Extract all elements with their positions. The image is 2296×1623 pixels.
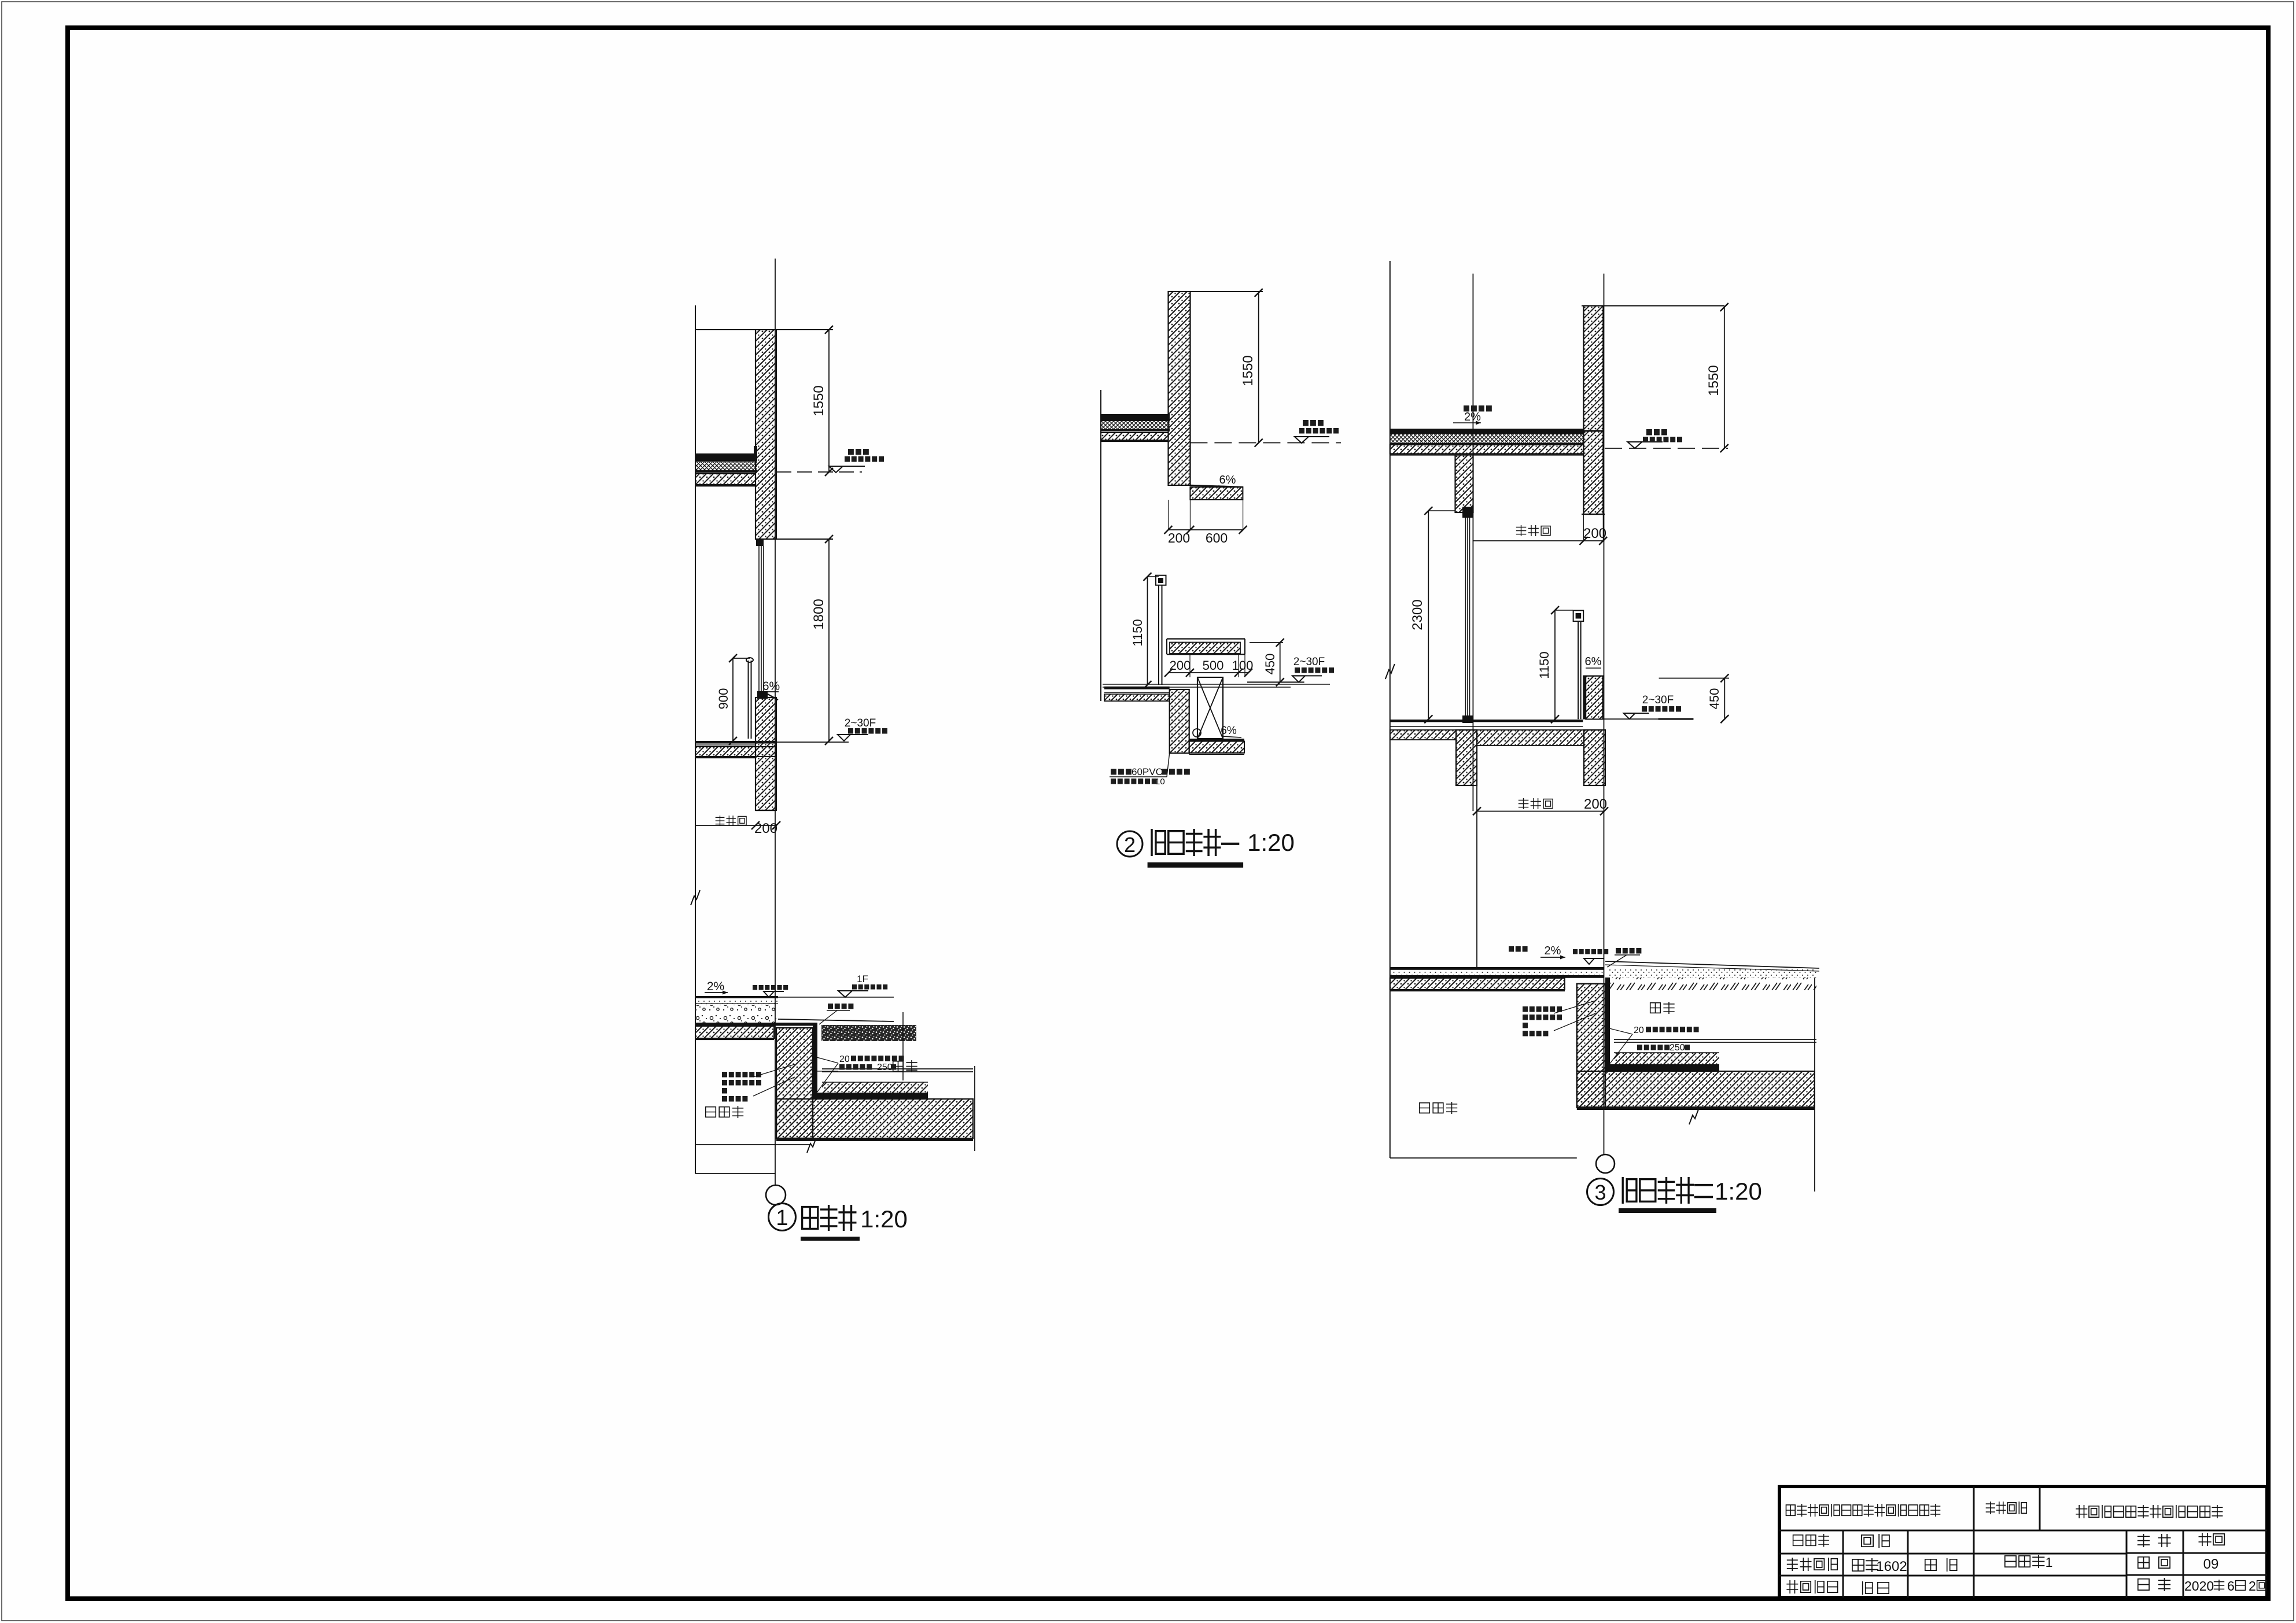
svg-text:6%: 6% bbox=[1219, 474, 1236, 486]
svg-text:100: 100 bbox=[1232, 658, 1254, 673]
svg-text:2~30F: 2~30F bbox=[1642, 694, 1674, 706]
svg-text:250: 250 bbox=[1670, 1043, 1685, 1053]
svg-text:2~30F: 2~30F bbox=[1293, 656, 1325, 668]
svg-text:1F: 1F bbox=[857, 973, 868, 984]
svg-text:09: 09 bbox=[2203, 1556, 2219, 1572]
svg-text:20: 20 bbox=[839, 1054, 850, 1064]
svg-text:2%: 2% bbox=[1464, 411, 1481, 423]
svg-text:3: 3 bbox=[1594, 1181, 1606, 1204]
svg-text:1602: 1602 bbox=[1876, 1559, 1907, 1574]
svg-text:6%: 6% bbox=[1585, 655, 1602, 668]
svg-text:2: 2 bbox=[2249, 1578, 2256, 1594]
svg-text:200: 200 bbox=[754, 821, 777, 836]
svg-text:6: 6 bbox=[2227, 1578, 2235, 1594]
svg-text:2~30F: 2~30F bbox=[845, 717, 876, 729]
svg-text:1:20: 1:20 bbox=[860, 1205, 908, 1233]
svg-text:2%: 2% bbox=[1545, 945, 1561, 957]
svg-text:450: 450 bbox=[1707, 688, 1722, 710]
svg-text:200: 200 bbox=[1168, 530, 1190, 545]
svg-text:450: 450 bbox=[1263, 654, 1277, 675]
svg-text:600: 600 bbox=[1206, 530, 1228, 545]
svg-text:500: 500 bbox=[1203, 658, 1224, 673]
svg-text:1550: 1550 bbox=[1240, 355, 1256, 386]
svg-text:1: 1 bbox=[2046, 1555, 2053, 1570]
svg-text:1800: 1800 bbox=[811, 599, 827, 629]
svg-text:2: 2 bbox=[1124, 833, 1136, 857]
svg-text:1:20: 1:20 bbox=[1715, 1178, 1762, 1205]
svg-text:900: 900 bbox=[716, 688, 731, 710]
svg-text:6%: 6% bbox=[1221, 725, 1237, 737]
svg-text:1150: 1150 bbox=[1537, 651, 1551, 678]
svg-text:250: 250 bbox=[877, 1063, 893, 1072]
svg-text:1: 1 bbox=[776, 1206, 788, 1230]
svg-text:200: 200 bbox=[1170, 658, 1191, 673]
svg-text:1150: 1150 bbox=[1130, 619, 1145, 646]
svg-text:10: 10 bbox=[1155, 777, 1165, 787]
svg-text:2%: 2% bbox=[707, 980, 724, 993]
svg-text:20: 20 bbox=[1634, 1026, 1644, 1035]
svg-text:2020: 2020 bbox=[2184, 1578, 2214, 1594]
svg-text:2300: 2300 bbox=[1410, 599, 1425, 630]
svg-text:1550: 1550 bbox=[811, 385, 827, 416]
svg-text:60PVC: 60PVC bbox=[1132, 766, 1163, 777]
svg-text:6%: 6% bbox=[762, 680, 780, 693]
svg-text:1:20: 1:20 bbox=[1247, 829, 1295, 856]
svg-text:200: 200 bbox=[1584, 796, 1607, 812]
svg-text:1550: 1550 bbox=[1706, 365, 1722, 396]
